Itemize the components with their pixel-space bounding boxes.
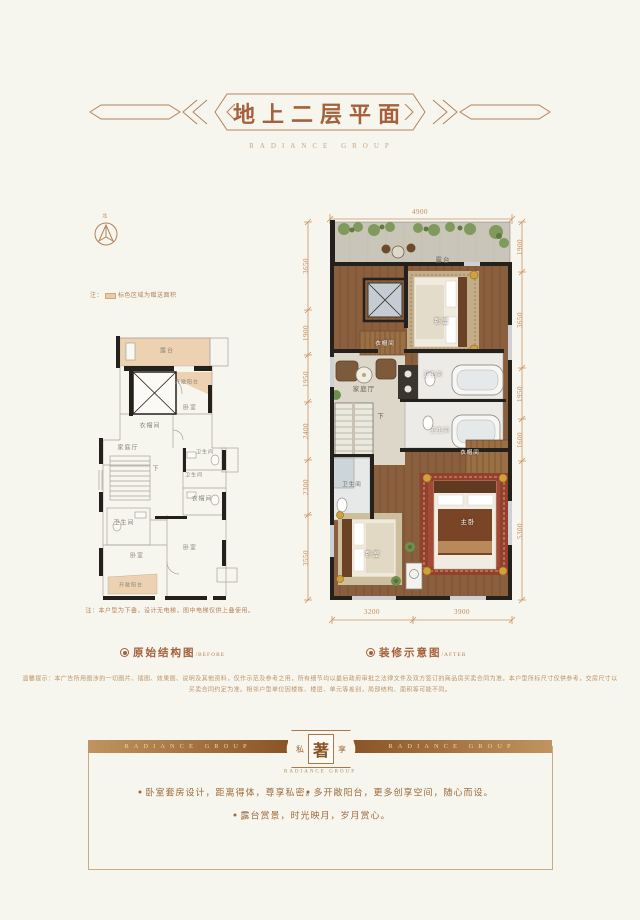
room-label: 家庭厅 — [353, 383, 376, 393]
dim-left: 1950 — [302, 371, 310, 387]
dim-bottom: 3200 — [364, 608, 380, 616]
badge-center-char: 著 — [308, 734, 334, 764]
badge-left-char: 私 — [296, 744, 304, 755]
room-label: 卧室 — [366, 548, 381, 558]
disclaimer-line-1: 温馨提示：本广告所用图涉的一切图片、插图、效果图、说明及其他资料，仅作示范及参考… — [22, 674, 617, 683]
banner-badge: 私 著 享 — [286, 730, 356, 768]
footer-bullet-1-text: 卧室套房设计，距离得体，尊享私密。 — [145, 788, 315, 798]
room-label: 衣帽间 — [460, 448, 480, 456]
after-plan-graphic — [300, 205, 535, 635]
room-label: 露台 — [436, 254, 451, 264]
header-brand: RADIANCE GROUP — [249, 142, 395, 150]
bullet-icon — [120, 648, 129, 657]
dim-right: 1900 — [516, 239, 524, 255]
banner-brand-left: RADIANCE GROUP — [124, 743, 251, 750]
badge-brand-small: RADIANCE GROUP — [284, 770, 356, 775]
banner-left-bar: RADIANCE GROUP — [88, 740, 288, 753]
room-label: 衣帽间 — [375, 339, 395, 347]
dim-left: 3550 — [302, 550, 310, 566]
room-label: 卧室 — [435, 315, 450, 325]
before-plan-graphic — [95, 330, 245, 610]
dim-left: 1900 — [302, 325, 310, 341]
room-label: 主卧 — [461, 516, 476, 526]
dim-bottom: 3900 — [454, 608, 470, 616]
room-label: 衣帽间 — [191, 494, 212, 503]
dim-left: 2400 — [302, 423, 310, 439]
room-label: 卧室 — [183, 543, 197, 552]
dim-top: 4900 — [412, 208, 428, 216]
dot-icon — [138, 791, 141, 794]
banner-right-bar: RADIANCE GROUP — [352, 740, 552, 753]
dim-right: 5300 — [516, 523, 524, 539]
disclaimer-line-2: 买卖合同约定为准。相邻户型单位因楼栋、楼层、单元等差别，局部结构、面积等可能不同… — [189, 685, 451, 694]
before-caption: 原始结构图/BEFORE — [120, 643, 225, 661]
legend-text: 标色区域为赠送面积 — [118, 293, 177, 299]
dim-right: 1950 — [516, 386, 524, 402]
room-label: 家庭厅 — [117, 443, 138, 452]
after-caption-en: /AFTER — [442, 652, 467, 658]
stairs-down-label: 下 — [377, 410, 385, 420]
compass-icon — [92, 220, 120, 248]
after-caption: 装修示意图/AFTER — [366, 643, 466, 661]
before-caption-en: /BEFORE — [196, 652, 226, 658]
dot-icon — [233, 814, 236, 817]
room-label: 卫生间 — [423, 370, 443, 378]
dot-icon — [306, 791, 309, 794]
footer-bullet-2: 多开敞阳台，更多创享空间，随心而设。 — [306, 786, 493, 799]
before-caption-text: 原始结构图 — [133, 648, 196, 659]
badge-right-char: 享 — [338, 744, 346, 755]
legend-note: 注：标色区域为赠送面积 — [90, 290, 177, 299]
dim-left: 3650 — [302, 258, 310, 274]
room-label: 卫生间 — [430, 426, 450, 434]
room-label: 卫生间 — [342, 480, 362, 488]
room-label: 衣帽间 — [139, 421, 160, 430]
banner-brand-right: RADIANCE GROUP — [388, 743, 515, 750]
after-caption-text: 装修示意图 — [379, 648, 442, 659]
dim-right: 1600 — [516, 432, 524, 448]
room-label: 卫生间 — [196, 449, 214, 456]
room-label: 开敞阳台 — [175, 379, 199, 386]
legend-prefix: 注： — [90, 293, 103, 299]
legend-swatch-icon — [105, 293, 116, 299]
bullet-icon — [366, 648, 375, 657]
room-label: 露台 — [160, 346, 174, 355]
dim-left: 2300 — [302, 479, 310, 495]
footer-bullet-3: 露台赏景，时光映月，岁月赏心。 — [233, 809, 390, 822]
stairs-down-label: 下 — [152, 464, 159, 473]
page-title: 地上二层平面 — [233, 97, 407, 129]
north-label: 北 — [102, 213, 108, 220]
room-label: 卫生间 — [185, 472, 203, 479]
room-label: 卫生间 — [113, 518, 134, 527]
footer-bullet-2-text: 多开敞阳台，更多创享空间，随心而设。 — [313, 788, 493, 798]
room-label: 开敞阳台 — [119, 582, 143, 589]
room-label: 卧室 — [183, 403, 197, 412]
before-plan-note: 注：本户型为下叠，设计无电梯，图中电梯仅供上叠使用。 — [85, 606, 254, 615]
footer-bullet-1: 卧室套房设计，距离得体，尊享私密。 — [138, 786, 315, 799]
room-label: 卧室 — [130, 551, 144, 560]
footer-bullet-3-text: 露台赏景，时光映月，岁月赏心。 — [240, 811, 390, 821]
dim-right: 3650 — [516, 312, 524, 328]
